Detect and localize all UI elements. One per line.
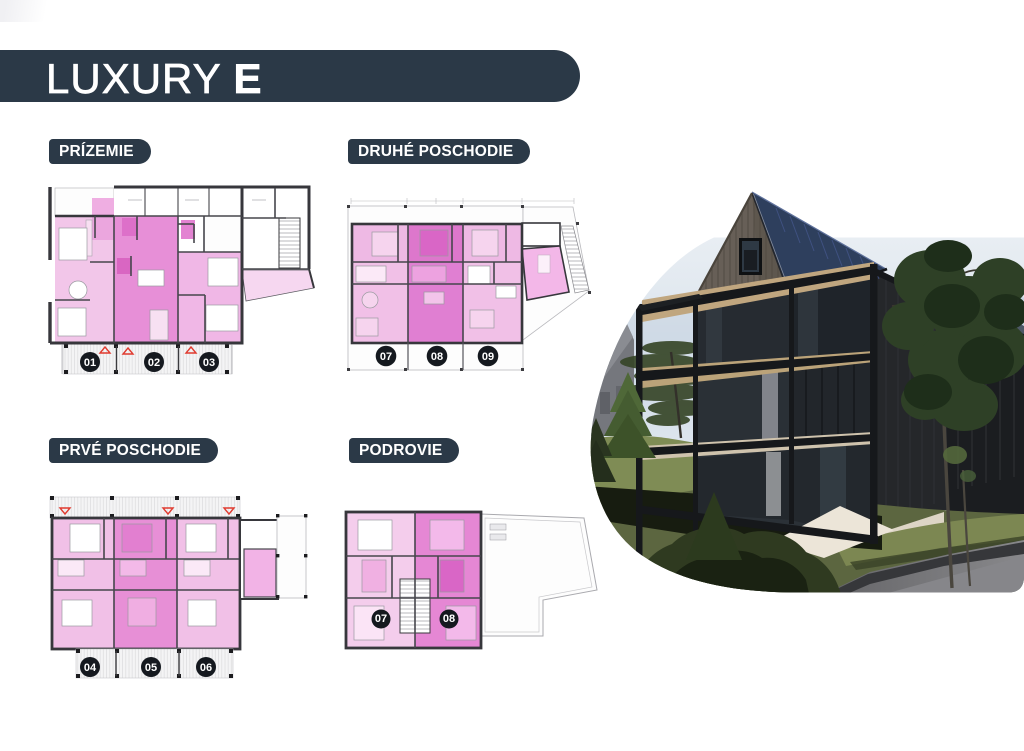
svg-text:06: 06 [200,662,212,674]
svg-text:09: 09 [482,351,494,363]
svg-text:01: 01 [84,357,96,369]
svg-text:08: 08 [431,351,443,363]
svg-text:08: 08 [443,613,455,625]
svg-text:07: 07 [380,351,392,363]
svg-text:02: 02 [148,357,160,369]
svg-text:05: 05 [145,662,157,674]
svg-text:04: 04 [84,662,97,674]
svg-text:03: 03 [203,357,215,369]
svg-text:07: 07 [375,613,387,625]
